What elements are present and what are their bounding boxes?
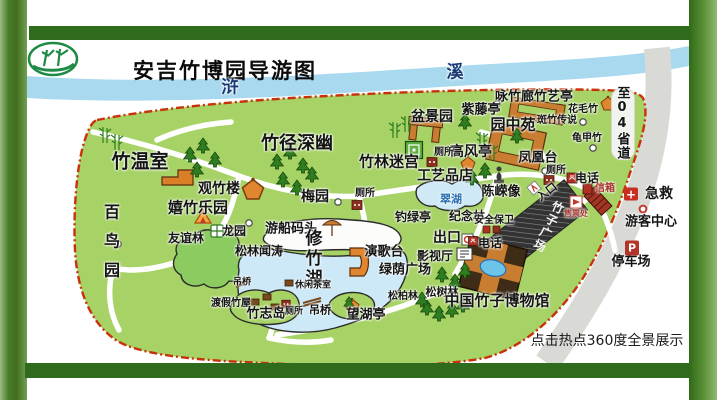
page: 安吉竹博园导游图 浒 溪 竹温室 竹径深幽 观竹楼 梅园 嬉竹乐园 百鸟园 友谊…: [0, 0, 720, 400]
label-diaoqiao-west[interactable]: 吊桥: [233, 279, 251, 288]
label-xizhu-leyuan[interactable]: 嬉竹乐园: [168, 201, 228, 216]
parking-icon: P: [625, 241, 639, 256]
label-fenghuangtai[interactable]: 凤凰台: [518, 152, 557, 165]
label-zhuzhidao[interactable]: 竹志岛: [246, 308, 285, 321]
river-name-char1: 浒: [222, 80, 239, 97]
toilet-icon[interactable]: [427, 158, 437, 167]
river-name-char2: 溪: [447, 65, 464, 82]
first-aid-icon: +: [624, 188, 638, 201]
phone-icon[interactable]: [469, 237, 478, 246]
label-songlin-wentao[interactable]: 松林闻涛: [235, 245, 283, 257]
label-guijiazhu[interactable]: 龟甲竹: [572, 134, 602, 144]
label-tingchechang[interactable]: 停车场: [611, 256, 650, 269]
label-cesuo-rukou[interactable]: 厕所: [546, 166, 566, 176]
right-border-bar: [689, 0, 717, 400]
label-cuihu[interactable]: 翠湖: [440, 194, 462, 205]
label-dianhua-chukou[interactable]: 电话: [478, 237, 502, 249]
label-chenrongxiang[interactable]: 陈嵘像: [481, 186, 520, 199]
toilet-icon[interactable]: [352, 201, 362, 210]
bottom-border-bar: [25, 363, 689, 378]
island-hut: [251, 299, 259, 305]
left-border-bar: [0, 0, 27, 400]
cinema-hall-icon[interactable]: [457, 248, 472, 260]
label-zhulin-migong[interactable]: 竹林迷宫: [359, 155, 419, 170]
label-diaolvting[interactable]: 钓绿亭: [395, 211, 431, 223]
label-diaoqiao-east[interactable]: 吊桥: [309, 305, 331, 316]
label-guanzhulou[interactable]: 观竹楼: [198, 182, 240, 196]
label-zhujing-shenyou[interactable]: 竹径深幽: [261, 135, 333, 153]
security-icon: [493, 226, 500, 233]
park-logo: [27, 40, 79, 78]
label-songbolin[interactable]: 松柏林: [388, 292, 418, 302]
label-bowuguan[interactable]: 中国竹子博物馆: [444, 294, 549, 309]
park-map: 安吉竹博园导游图 浒 溪 竹温室 竹径深幽 观竹楼 梅园 嬉竹乐园 百鸟园 友谊…: [27, 40, 689, 363]
label-dujia-zhuwu[interactable]: 渡假竹屋: [211, 299, 251, 309]
label-shoupiaochu[interactable]: 售票处: [564, 210, 588, 218]
label-gaofengting[interactable]: 高风亭: [450, 145, 492, 159]
label-zhu-wenshi[interactable]: 竹温室: [111, 153, 168, 172]
label-gongyipindian[interactable]: 工艺品店: [417, 169, 473, 183]
label-lvyin-guangchang[interactable]: 绿荫广场: [379, 264, 431, 277]
label-yingshiting[interactable]: 影视厅: [417, 250, 453, 262]
label-road: 至04省道: [616, 86, 629, 160]
label-youke-zhongxin[interactable]: 游客中心: [625, 216, 677, 229]
panorama-hint: 点击热点360度全景展示: [531, 334, 684, 348]
mailbox-icon[interactable]: [583, 184, 592, 194]
label-bainiaoyuan[interactable]: 百鸟园: [102, 204, 118, 291]
label-wanghuting[interactable]: 望湖亭: [346, 309, 385, 322]
label-longyuan[interactable]: 龙园: [222, 225, 246, 237]
ticket-office-hand-icon[interactable]: [570, 196, 582, 208]
security-icon: [483, 226, 490, 233]
tea-house-icon[interactable]: [285, 280, 293, 286]
label-youyilin[interactable]: 友谊林: [168, 232, 204, 244]
label-cesuo-gaofengting[interactable]: 厕所: [434, 148, 454, 158]
label-penjingyuan[interactable]: 盆景园: [411, 110, 453, 124]
label-cesuo-island[interactable]: 厕所: [285, 308, 303, 317]
island-hut: [263, 294, 271, 300]
label-yangetai[interactable]: 演歌台: [364, 246, 403, 259]
label-jijiu[interactable]: 急救: [645, 187, 673, 201]
label-xiuxian-chashi[interactable]: 休闲茶室: [295, 282, 331, 291]
visitor-center-dot[interactable]: [640, 206, 647, 213]
top-border-bar: [29, 26, 689, 40]
label-huamaozhu[interactable]: 花毛竹: [568, 105, 598, 115]
label-anquan-baowei[interactable]: 安全保卫: [474, 216, 514, 226]
label-yongzhulang-zhuyiting[interactable]: 咏竹廊竹艺亭: [495, 91, 573, 104]
label-meiyuan[interactable]: 梅园: [301, 190, 329, 204]
label-yuanzhongyuan[interactable]: 园中苑: [490, 118, 535, 133]
label-chukou[interactable]: 出口: [433, 231, 461, 245]
label-xinxiang[interactable]: 信箱: [595, 184, 615, 194]
label-cesuo-meiyuan[interactable]: 厕所: [355, 189, 375, 199]
label-banzhu-chuanshuo[interactable]: 斑竹传说: [537, 116, 577, 126]
